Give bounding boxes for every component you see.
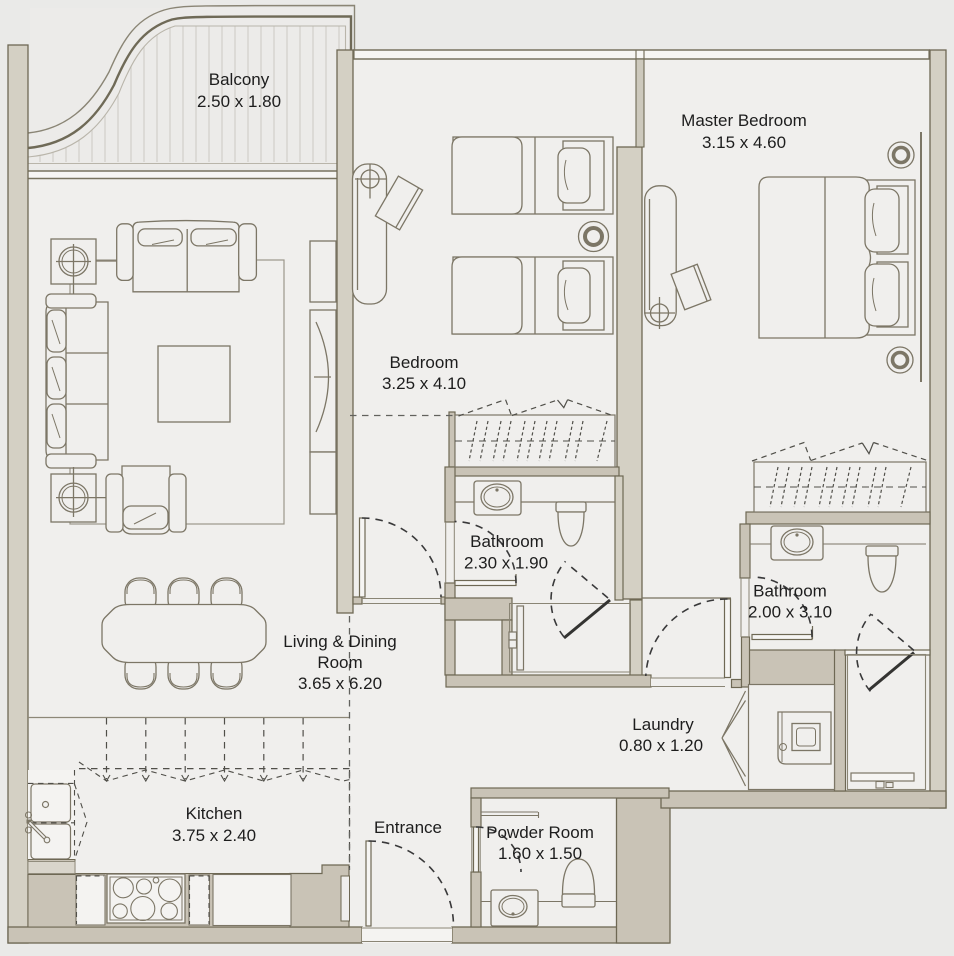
svg-text:Bathroom: Bathroom (753, 582, 827, 601)
svg-text:3.15 x 4.60: 3.15 x 4.60 (702, 133, 786, 152)
svg-text:Bedroom: Bedroom (390, 353, 459, 372)
svg-text:Laundry: Laundry (632, 715, 694, 734)
svg-text:Living & Dining: Living & Dining (283, 632, 396, 651)
svg-text:Master Bedroom: Master Bedroom (681, 111, 807, 130)
svg-text:Kitchen: Kitchen (186, 804, 243, 823)
svg-text:Bathroom: Bathroom (470, 532, 544, 551)
svg-text:Entrance: Entrance (374, 818, 442, 837)
svg-text:3.75 x 2.40: 3.75 x 2.40 (172, 826, 256, 845)
svg-text:2.50 x 1.80: 2.50 x 1.80 (197, 92, 281, 111)
svg-text:2.30 x 1.90: 2.30 x 1.90 (464, 554, 548, 573)
svg-text:0.80 x 1.20: 0.80 x 1.20 (619, 736, 703, 755)
svg-text:3.65 x 6.20: 3.65 x 6.20 (298, 674, 382, 693)
svg-text:Powder Room: Powder Room (486, 823, 594, 842)
svg-text:3.25 x 4.10: 3.25 x 4.10 (382, 374, 466, 393)
svg-text:Balcony: Balcony (209, 70, 270, 89)
svg-text:Room: Room (317, 653, 362, 672)
svg-text:1.60 x 1.50: 1.60 x 1.50 (498, 844, 582, 863)
svg-text:2.00 x 3.10: 2.00 x 3.10 (748, 603, 832, 622)
